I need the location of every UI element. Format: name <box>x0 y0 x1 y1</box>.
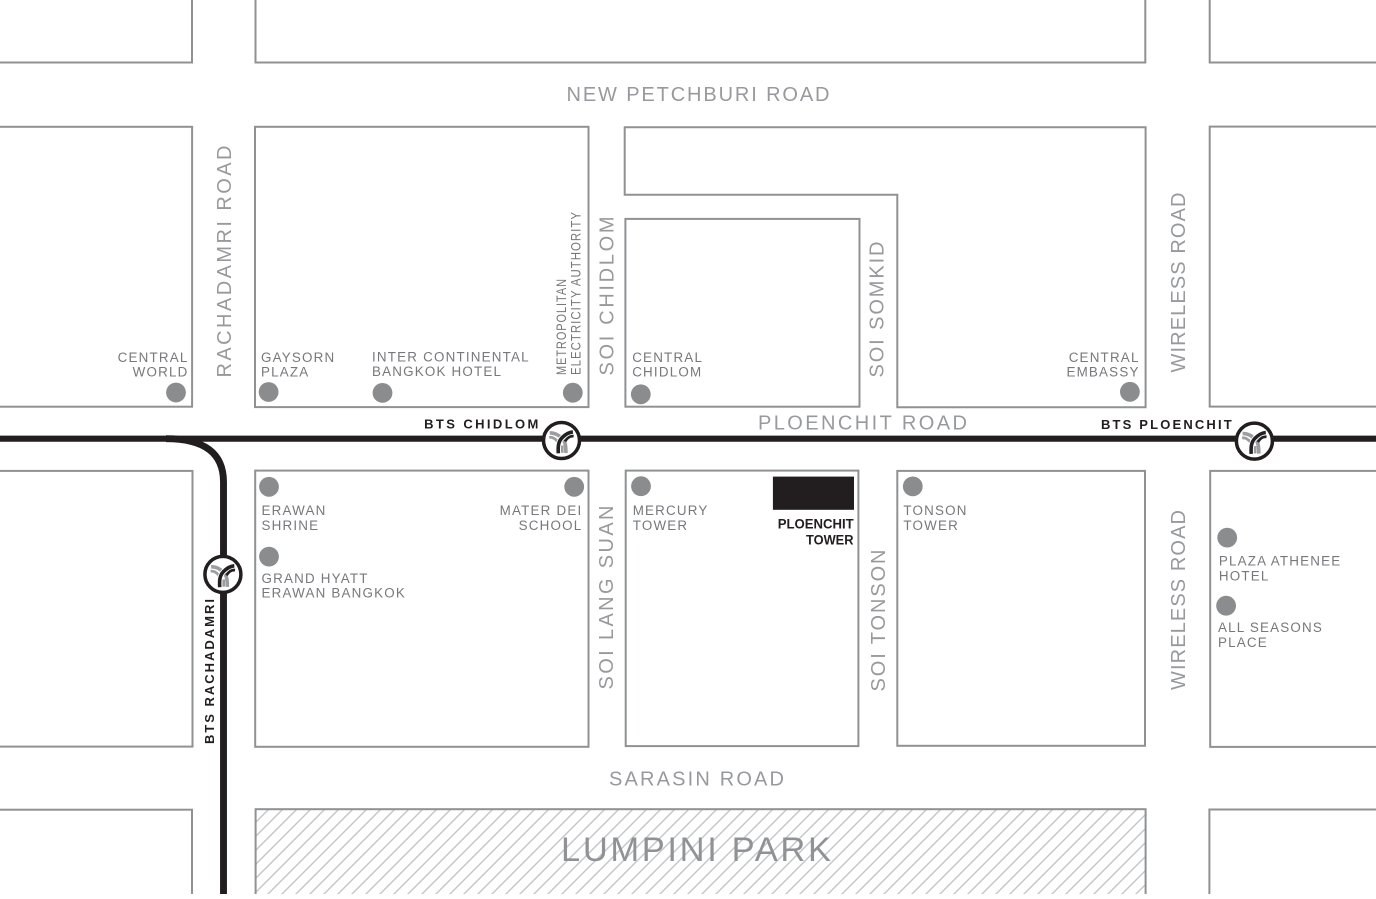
svg-text:GAYSORN: GAYSORN <box>261 350 335 365</box>
svg-text:BANGKOK HOTEL: BANGKOK HOTEL <box>372 364 502 379</box>
svg-text:SOI SOMKID: SOI SOMKID <box>867 238 889 378</box>
svg-text:BTS CHIDLOM: BTS CHIDLOM <box>424 416 538 431</box>
svg-text:WIRELESS ROAD: WIRELESS ROAD <box>1168 189 1190 373</box>
svg-text:MERCURY: MERCURY <box>633 503 709 518</box>
svg-text:CENTRAL: CENTRAL <box>118 350 189 365</box>
svg-text:SOI CHIDLOM: SOI CHIDLOM <box>597 213 619 376</box>
svg-text:ERAWAN BANGKOK: ERAWAN BANGKOK <box>262 586 407 601</box>
svg-text:SOI TONSON: SOI TONSON <box>868 546 890 692</box>
svg-text:RACHADAMRI ROAD: RACHADAMRI ROAD <box>214 142 236 378</box>
svg-text:TONSON: TONSON <box>903 503 967 518</box>
svg-text:CENTRAL: CENTRAL <box>1069 350 1140 365</box>
svg-text:CHIDLOM: CHIDLOM <box>632 365 702 380</box>
svg-text:PLOENCHIT ROAD: PLOENCHIT ROAD <box>758 412 971 434</box>
svg-text:LUMPINI PARK: LUMPINI PARK <box>561 831 837 869</box>
svg-text:ELECTRICITY AUTHORITY: ELECTRICITY AUTHORITY <box>569 211 584 375</box>
svg-text:TOWER: TOWER <box>633 518 689 533</box>
svg-text:PLAZA: PLAZA <box>261 365 309 380</box>
svg-text:PLOENCHIT: PLOENCHIT <box>778 516 855 531</box>
svg-text:INTER CONTINENTAL: INTER CONTINENTAL <box>372 349 530 364</box>
svg-text:METROPOLITAN: METROPOLITAN <box>554 278 569 375</box>
svg-text:TOWER: TOWER <box>903 518 959 533</box>
svg-text:MATER DEI: MATER DEI <box>500 503 583 518</box>
svg-text:EMBASSY: EMBASSY <box>1066 365 1139 380</box>
svg-text:TOWER: TOWER <box>806 533 854 548</box>
svg-text:WORLD: WORLD <box>133 365 189 380</box>
svg-text:SARASIN ROAD: SARASIN ROAD <box>609 768 788 790</box>
svg-text:SOI LANG SUAN: SOI LANG SUAN <box>596 502 618 690</box>
svg-text:BTS RACHADAMRI: BTS RACHADAMRI <box>202 599 217 744</box>
svg-text:WIRELESS ROAD: WIRELESS ROAD <box>1168 506 1190 690</box>
svg-text:ERAWAN: ERAWAN <box>262 503 327 518</box>
svg-text:CENTRAL: CENTRAL <box>632 350 703 365</box>
svg-text:ALL SEASONS: ALL SEASONS <box>1218 620 1323 635</box>
svg-text:PLACE: PLACE <box>1218 635 1268 650</box>
svg-text:GRAND HYATT: GRAND HYATT <box>262 571 369 586</box>
svg-text:HOTEL: HOTEL <box>1219 568 1270 583</box>
svg-text:SHRINE: SHRINE <box>262 518 320 533</box>
svg-text:NEW PETCHBURI ROAD: NEW PETCHBURI ROAD <box>567 84 834 106</box>
svg-text:PLAZA ATHENEE: PLAZA ATHENEE <box>1219 553 1342 568</box>
svg-text:SCHOOL: SCHOOL <box>519 518 583 533</box>
